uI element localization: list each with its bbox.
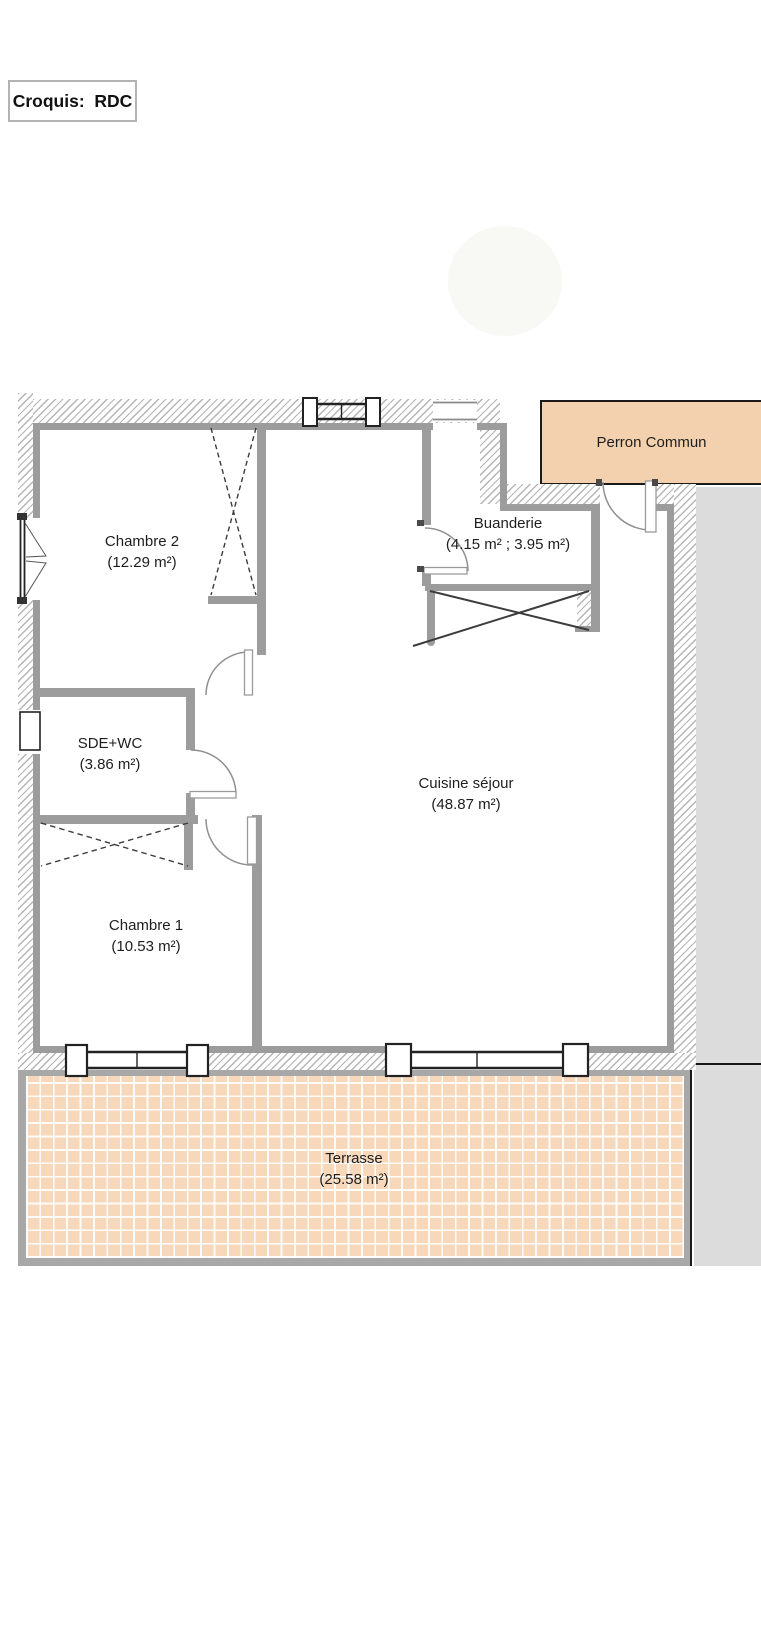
wall-left	[18, 754, 33, 1070]
closet-buanderie-bottom	[575, 626, 600, 632]
closet-buanderie-top	[425, 584, 600, 591]
closet-buanderie-left	[427, 584, 435, 646]
wall-chambre2-right	[257, 425, 266, 655]
wall-lining	[33, 600, 40, 710]
wall-lining	[500, 423, 507, 511]
room-perron-commun: Perron Commun	[540, 400, 761, 485]
wall-lining	[33, 423, 433, 430]
wall-buanderie-right	[591, 509, 600, 586]
room-label-chambre1: Chambre 1 (10.53 m²)	[109, 915, 183, 957]
closet-x-chambre2	[211, 428, 256, 595]
wall-right	[674, 484, 696, 1070]
door-leaf-chambre2	[245, 650, 253, 695]
watermark-circle	[448, 226, 562, 336]
window-chambre2-french	[16, 513, 46, 604]
wall-lining	[33, 430, 40, 518]
door-leaf-sde-wc	[190, 792, 236, 799]
wall-lining	[667, 504, 674, 1053]
wall-bottom	[206, 1053, 388, 1070]
room-label-terrasse: Terrasse (25.58 m²)	[319, 1148, 388, 1190]
wall-under-perron	[655, 484, 674, 504]
boundary-line	[689, 1063, 761, 1065]
closet-x-buanderie	[413, 591, 589, 646]
closet-chambre1-right	[184, 822, 193, 870]
closet-buanderie-right	[591, 584, 600, 632]
wall-notch	[480, 423, 500, 504]
plan-symbols	[0, 0, 761, 1649]
boundary-line	[690, 1063, 692, 1266]
room-label-perron: Perron Commun	[596, 434, 706, 451]
door-arc-entry	[603, 482, 651, 530]
wall-lining	[33, 754, 40, 1046]
floor-plan: Croquis: RDC Perron Commun	[0, 0, 761, 1649]
wall-left	[18, 393, 33, 518]
door-arc-sde-wc	[191, 750, 236, 795]
wall-left	[18, 600, 33, 710]
window-sde-wc	[16, 710, 40, 754]
wall-lining	[500, 504, 600, 511]
plan-title: Croquis: RDC	[13, 91, 133, 112]
wall-bottom	[18, 1053, 68, 1070]
plan-title-box: Croquis: RDC	[8, 80, 137, 122]
closet-chambre2-bottom	[208, 596, 266, 604]
closet-x-chambre1	[41, 823, 188, 866]
wall-chambre1-top	[40, 815, 198, 824]
room-label-sde-wc: SDE+WC (3.86 m²)	[78, 733, 143, 775]
wall-under-perron	[500, 484, 600, 504]
wall-buanderie-left	[422, 430, 431, 525]
wall-lining	[33, 1046, 68, 1053]
wall-sde-top	[40, 688, 186, 697]
wall-bottom	[588, 1053, 696, 1070]
wall-chambre1-right	[252, 815, 262, 1048]
room-label-buanderie: Buanderie (4.15 m² ; 3.95 m²)	[446, 513, 570, 555]
wall-lining	[206, 1046, 388, 1053]
wall-sde-right	[186, 688, 195, 750]
room-label-chambre2: Chambre 2 (12.29 m²)	[105, 531, 179, 573]
wall-top	[18, 399, 500, 423]
door-arc-chambre2	[206, 652, 249, 695]
wall-lining	[588, 1046, 672, 1053]
room-label-cuisine: Cuisine séjour (48.87 m²)	[418, 773, 513, 815]
door-arc-chambre1	[206, 819, 252, 865]
adjacent-area	[694, 487, 761, 1266]
